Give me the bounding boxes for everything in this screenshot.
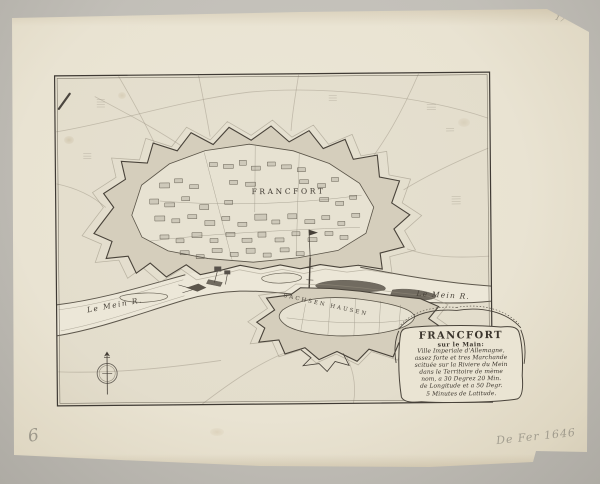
city-label: FRANCFORT bbox=[252, 187, 322, 197]
map-sheet: FRANCFORT SACHSEN HAUSEN Le Mein R. Le M… bbox=[0, 0, 600, 484]
cartouche: FRANCFORT sur le Main: Ville Imperiale d… bbox=[399, 330, 524, 403]
map-engraving bbox=[0, 0, 600, 484]
map-plate: FRANCFORT SACHSEN HAUSEN Le Mein R. Le M… bbox=[0, 0, 600, 484]
cartouche-line: 5 Minutes de Latitude. bbox=[399, 390, 523, 398]
photo-backdrop: FRANCFORT SACHSEN HAUSEN Le Mein R. Le M… bbox=[0, 0, 600, 484]
